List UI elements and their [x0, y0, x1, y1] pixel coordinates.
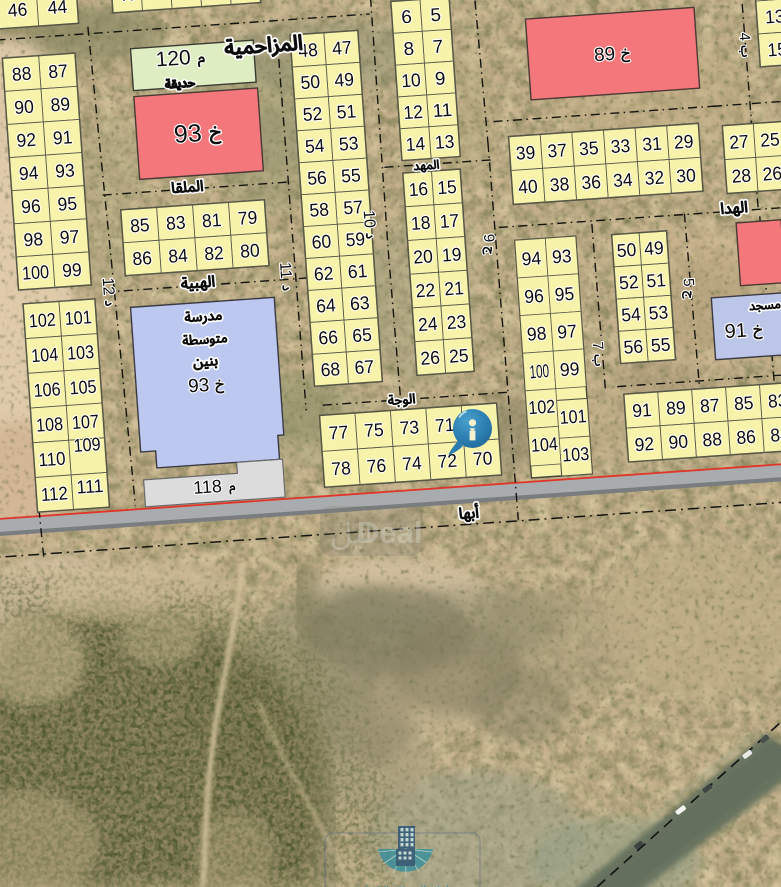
- svg-text:12: 12: [403, 101, 424, 123]
- svg-text:93: 93: [551, 245, 572, 267]
- svg-text:82: 82: [204, 242, 225, 264]
- svg-text:29: 29: [673, 130, 694, 152]
- svg-text:26: 26: [762, 162, 781, 184]
- svg-text:7: 7: [432, 35, 444, 57]
- svg-text:91: 91: [724, 320, 748, 343]
- svg-text:46: 46: [7, 0, 28, 21]
- svg-text:68: 68: [320, 358, 341, 380]
- svg-text:11: 11: [432, 99, 453, 121]
- svg-text:112: 112: [40, 482, 68, 505]
- svg-text:93: 93: [173, 119, 203, 149]
- svg-text:93: 93: [54, 159, 75, 181]
- svg-text:35: 35: [578, 137, 599, 159]
- svg-text:4: 4: [735, 32, 753, 42]
- svg-text:120: 120: [155, 46, 192, 71]
- svg-text:71: 71: [434, 414, 455, 436]
- svg-text:75: 75: [363, 419, 384, 441]
- svg-text:16: 16: [408, 178, 429, 200]
- svg-text:103: 103: [561, 443, 589, 466]
- svg-text:13: 13: [764, 5, 781, 27]
- svg-text:65: 65: [352, 324, 373, 346]
- svg-text:39: 39: [515, 141, 536, 163]
- svg-text:90: 90: [14, 96, 35, 118]
- svg-text:55: 55: [340, 164, 361, 186]
- svg-text:110: 110: [38, 448, 66, 471]
- svg-text:64: 64: [315, 294, 336, 316]
- svg-text:44: 44: [47, 0, 68, 18]
- svg-text:25: 25: [448, 345, 469, 367]
- svg-text:107: 107: [71, 410, 99, 433]
- svg-text:52: 52: [302, 103, 323, 125]
- svg-text:108: 108: [35, 413, 63, 436]
- svg-text:12: 12: [99, 277, 117, 296]
- svg-text:11: 11: [276, 262, 294, 280]
- svg-text:86: 86: [736, 426, 757, 448]
- svg-text:78: 78: [331, 457, 352, 479]
- svg-text:99: 99: [559, 358, 580, 380]
- svg-text:96: 96: [20, 195, 41, 217]
- svg-text:19: 19: [441, 243, 462, 265]
- svg-text:56: 56: [623, 335, 644, 357]
- svg-text:56: 56: [307, 167, 328, 189]
- svg-text:Deal: Deal: [357, 515, 422, 550]
- svg-text:58: 58: [309, 198, 330, 220]
- svg-text:95: 95: [554, 283, 575, 305]
- svg-text:70: 70: [472, 447, 493, 469]
- svg-text:9: 9: [480, 233, 498, 243]
- svg-text:8: 8: [403, 38, 415, 60]
- svg-text:84: 84: [770, 423, 781, 445]
- svg-text:55: 55: [650, 334, 671, 356]
- svg-text:37: 37: [547, 139, 568, 161]
- svg-text:33: 33: [610, 135, 631, 157]
- svg-text:101: 101: [64, 306, 92, 329]
- svg-text:59: 59: [345, 228, 366, 250]
- svg-text:28: 28: [731, 164, 752, 186]
- svg-text:86: 86: [132, 247, 153, 269]
- svg-text:97: 97: [557, 320, 578, 342]
- svg-text:54: 54: [621, 303, 642, 325]
- svg-text:92: 92: [634, 433, 655, 455]
- svg-text:53: 53: [338, 132, 359, 154]
- svg-text:102: 102: [28, 309, 56, 332]
- svg-text:98: 98: [526, 322, 547, 344]
- svg-text:77: 77: [328, 421, 349, 443]
- svg-text:23: 23: [446, 311, 467, 333]
- svg-text:31: 31: [642, 133, 663, 155]
- svg-text:99: 99: [61, 259, 82, 281]
- svg-text:79: 79: [237, 207, 258, 229]
- svg-text:89: 89: [593, 44, 616, 66]
- svg-text:62: 62: [313, 262, 334, 284]
- svg-text:100: 100: [529, 360, 550, 382]
- svg-text:27: 27: [729, 131, 750, 153]
- svg-text:36: 36: [581, 171, 602, 193]
- svg-text:89: 89: [665, 397, 686, 419]
- svg-text:18: 18: [410, 212, 431, 234]
- svg-text:6: 6: [401, 6, 413, 28]
- svg-text:106: 106: [33, 378, 61, 401]
- svg-text:7: 7: [589, 341, 607, 351]
- svg-text:83: 83: [767, 389, 781, 411]
- svg-text:85: 85: [733, 392, 754, 414]
- svg-text:102: 102: [528, 395, 556, 418]
- svg-text:52: 52: [618, 271, 639, 293]
- svg-text:95: 95: [57, 192, 78, 214]
- svg-text:83: 83: [165, 212, 186, 234]
- svg-text:50: 50: [616, 239, 637, 261]
- svg-text:87: 87: [48, 60, 69, 82]
- svg-text:20: 20: [413, 245, 434, 267]
- svg-text:100: 100: [21, 261, 49, 284]
- svg-text:51: 51: [646, 269, 667, 291]
- svg-text:34: 34: [612, 169, 633, 191]
- svg-text:92: 92: [16, 129, 37, 151]
- svg-text:26: 26: [420, 347, 441, 369]
- svg-text:91: 91: [52, 126, 73, 148]
- svg-text:47: 47: [331, 37, 352, 59]
- svg-text:111: 111: [76, 475, 104, 498]
- svg-text:101: 101: [559, 405, 587, 428]
- svg-text:5: 5: [679, 278, 697, 288]
- svg-text:80: 80: [239, 239, 260, 261]
- svg-text:90: 90: [668, 431, 689, 453]
- svg-text:74: 74: [401, 452, 422, 474]
- svg-text:97: 97: [59, 226, 80, 248]
- svg-text:109: 109: [73, 433, 101, 456]
- svg-text:53: 53: [648, 301, 669, 323]
- svg-text:91: 91: [632, 399, 653, 421]
- svg-text:118: 118: [193, 476, 223, 498]
- svg-text:10: 10: [360, 210, 378, 229]
- svg-text:94: 94: [18, 162, 39, 184]
- svg-text:66: 66: [318, 326, 339, 348]
- svg-text:93: 93: [187, 375, 210, 397]
- svg-text:84: 84: [168, 244, 189, 266]
- svg-text:72: 72: [437, 450, 458, 472]
- svg-text:32: 32: [644, 167, 665, 189]
- svg-text:50: 50: [300, 71, 321, 93]
- svg-text:30: 30: [676, 164, 697, 186]
- svg-text:13: 13: [434, 131, 455, 153]
- svg-text:49: 49: [334, 68, 355, 90]
- svg-text:40: 40: [517, 175, 538, 197]
- svg-text:5: 5: [430, 4, 442, 26]
- svg-text:89: 89: [50, 93, 71, 115]
- svg-text:61: 61: [347, 260, 368, 282]
- svg-text:22: 22: [415, 279, 436, 301]
- svg-text:88: 88: [702, 428, 723, 450]
- svg-text:15: 15: [767, 38, 781, 60]
- svg-text:94: 94: [521, 247, 542, 269]
- svg-text:98: 98: [23, 228, 44, 250]
- svg-text:24: 24: [417, 313, 438, 335]
- svg-text:15: 15: [437, 176, 458, 198]
- svg-text:63: 63: [349, 292, 370, 314]
- svg-text:51: 51: [336, 100, 357, 122]
- svg-text:67: 67: [354, 356, 375, 378]
- svg-text:9: 9: [434, 67, 446, 89]
- svg-text:81: 81: [201, 209, 222, 231]
- svg-text:49: 49: [643, 237, 664, 259]
- svg-text:10: 10: [401, 69, 422, 91]
- svg-text:21: 21: [444, 277, 465, 299]
- svg-text:103: 103: [66, 341, 94, 364]
- svg-text:54: 54: [304, 135, 325, 157]
- svg-text:87: 87: [699, 394, 720, 416]
- svg-text:88: 88: [11, 63, 32, 85]
- svg-text:104: 104: [30, 343, 58, 366]
- svg-text:73: 73: [399, 416, 420, 438]
- svg-text:14: 14: [405, 133, 426, 155]
- svg-text:104: 104: [530, 433, 558, 456]
- svg-text:60: 60: [311, 230, 332, 252]
- svg-text:85: 85: [129, 214, 150, 236]
- svg-text:76: 76: [366, 455, 387, 477]
- svg-text:105: 105: [69, 376, 97, 399]
- svg-text:17: 17: [439, 210, 460, 232]
- svg-text:96: 96: [524, 285, 545, 307]
- svg-text:38: 38: [549, 173, 570, 195]
- svg-text:25: 25: [759, 128, 780, 150]
